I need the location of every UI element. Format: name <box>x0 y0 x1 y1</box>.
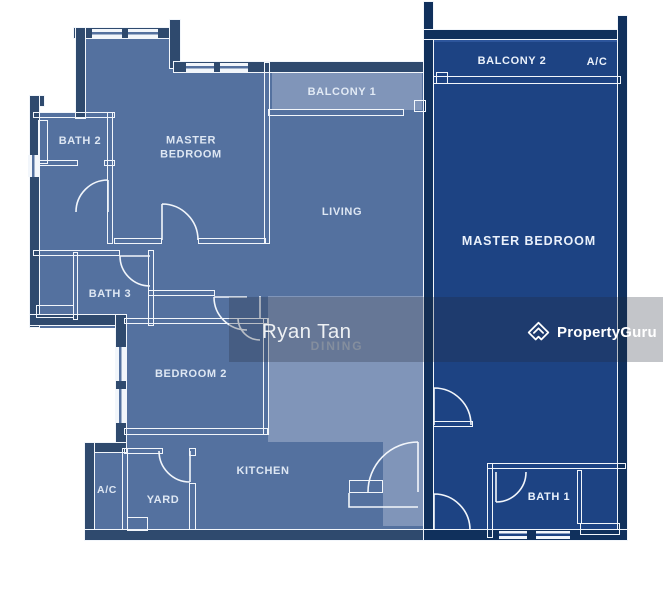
window <box>452 79 538 81</box>
wall <box>424 30 627 39</box>
brand-watermark: PropertyGuru <box>526 320 657 345</box>
wall <box>85 443 94 540</box>
window <box>128 29 158 38</box>
wall <box>264 62 270 244</box>
foyer-floor <box>383 438 424 526</box>
wall <box>114 238 162 244</box>
wall <box>85 530 433 540</box>
room-label-bath-1: BATH 1 <box>528 490 571 504</box>
wall <box>74 28 178 38</box>
room-label-bath-2: BATH 2 <box>59 134 102 148</box>
window <box>292 112 336 114</box>
wall <box>148 290 215 296</box>
window <box>553 81 615 83</box>
window <box>348 112 388 114</box>
window <box>92 29 122 38</box>
window <box>220 63 248 72</box>
wall <box>124 428 268 435</box>
room-label-ac-a: A/C <box>97 484 117 498</box>
wall <box>170 20 180 68</box>
window <box>499 531 527 539</box>
wall <box>577 470 582 524</box>
wall <box>189 483 196 530</box>
watermark-band: Ryan Tan PropertyGuru <box>229 297 663 362</box>
wall <box>424 2 433 540</box>
wall <box>487 463 626 469</box>
floor-plan: BATH 2 MASTER BEDROOM BALCONY 1 LIVING B… <box>0 0 663 600</box>
agent-watermark: Ryan Tan <box>262 320 351 344</box>
window <box>115 347 126 381</box>
wall <box>76 28 85 118</box>
yard-washer <box>127 517 148 531</box>
room-label-balcony-2: BALCONY 2 <box>478 54 547 68</box>
wall <box>198 238 266 244</box>
wall <box>433 421 473 427</box>
wall <box>148 250 154 326</box>
window <box>115 389 126 423</box>
room-label-balcony-1: BALCONY 1 <box>308 85 377 99</box>
room-label-bedroom-2: BEDROOM 2 <box>155 367 227 381</box>
brand-name: PropertyGuru <box>557 324 657 341</box>
room-label-yard: YARD <box>147 493 180 507</box>
wall <box>33 112 115 118</box>
propertyguru-house-icon <box>526 320 551 345</box>
wall <box>124 448 163 454</box>
bath-2-fixture <box>38 120 48 164</box>
window <box>536 531 570 539</box>
room-label-bath-3: BATH 3 <box>89 287 132 301</box>
room-label-master-bedroom-a: MASTER BEDROOM <box>148 134 234 163</box>
entry-step <box>349 480 383 493</box>
room-label-living: LIVING <box>322 205 362 219</box>
room-label-kitchen: KITCHEN <box>236 464 289 478</box>
wall <box>189 448 196 456</box>
bath-3-counter <box>36 305 74 318</box>
balcony-2-door <box>436 72 448 84</box>
wall <box>107 112 113 244</box>
wall <box>487 463 493 538</box>
room-label-master-bedroom-b: MASTER BEDROOM <box>462 233 596 249</box>
balcony-1-door <box>414 100 426 112</box>
window <box>186 63 214 72</box>
wall <box>618 16 627 540</box>
room-label-ac-b: A/C <box>587 55 608 69</box>
bath-1-shelf <box>580 523 620 535</box>
unit-b-floor <box>428 34 624 534</box>
